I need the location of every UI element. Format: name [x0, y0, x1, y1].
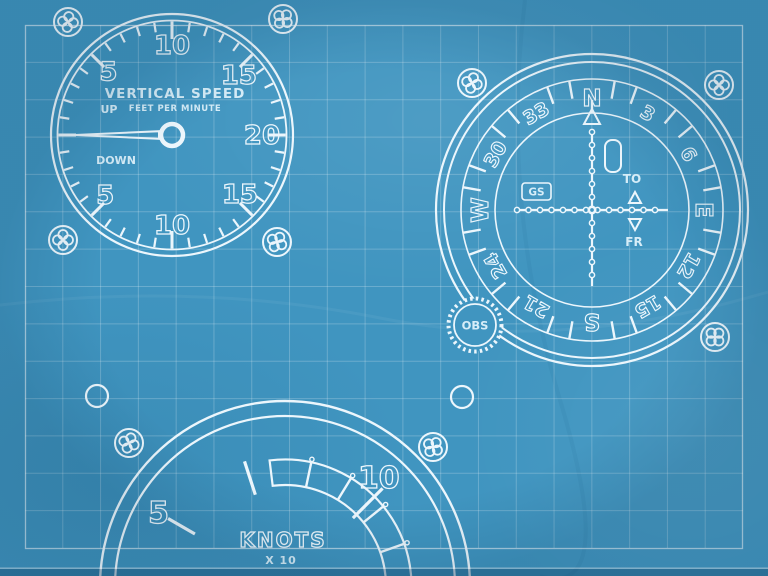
vsi-minor-tick — [60, 151, 69, 152]
blueprint-canvas: 510152015105 VERTICAL SPEED FEET PER MIN… — [0, 0, 768, 576]
vsi-minor-tick — [60, 117, 69, 118]
vsi-scale-number: 5 — [99, 57, 117, 87]
paper-edge-shadow — [0, 569, 768, 576]
blueprint-drawing: 510152015105 VERTICAL SPEED FEET PER MIN… — [0, 0, 768, 576]
obs-knob: OBS — [449, 299, 502, 352]
vor-needle-bead — [549, 207, 554, 212]
vor-compass-label: S — [584, 308, 601, 334]
screw-icon — [49, 226, 77, 254]
vor-needle-bead — [618, 207, 623, 212]
vsi-up-label: UP — [101, 103, 118, 116]
asi-title: KNOTS — [239, 528, 326, 552]
vor-needle-bead — [514, 207, 519, 212]
vsi-minor-tick — [275, 117, 284, 118]
vor-needle-bead — [572, 207, 577, 212]
screw-icon — [54, 8, 82, 36]
screw-icon — [705, 71, 733, 99]
vor-needle-bead — [589, 155, 594, 160]
screw-icon — [115, 429, 143, 457]
vor-compass-label: W — [468, 197, 494, 222]
obs-knob-label: OBS — [462, 319, 489, 333]
vor-needle-bead — [589, 233, 594, 238]
vsi-scale-number: 10 — [154, 211, 190, 241]
vor-needle-bead — [589, 220, 594, 225]
vor-needle-bead — [589, 194, 594, 199]
asi-scale-number: 5 — [148, 496, 169, 531]
vor-needle-bead — [629, 207, 634, 212]
vor-needle-bead — [526, 207, 531, 212]
vor-needle-bead — [589, 181, 594, 186]
vsi-down-label: DOWN — [96, 154, 136, 167]
vsi-title: VERTICAL SPEED — [105, 86, 246, 102]
vor-compass-label: E — [690, 202, 716, 218]
vor-needle-bead — [641, 207, 646, 212]
vsi-scale-number: 10 — [154, 31, 190, 61]
vsi-scale-number: 20 — [244, 121, 280, 151]
paper-edge-highlight — [0, 568, 768, 569]
vsi-scale-number: 15 — [222, 180, 258, 210]
vor-from-label: FR — [625, 235, 642, 249]
vor-gs-label: GS — [528, 187, 544, 199]
vor-needle-bead — [537, 207, 542, 212]
vsi-scale-number: 5 — [96, 181, 114, 211]
vor-needle-bead — [589, 142, 594, 147]
vor-needle-bead — [589, 129, 594, 134]
screw-icon — [458, 69, 486, 97]
vor-needle-bead — [560, 207, 565, 212]
vsi-minor-tick — [275, 151, 284, 152]
asi-scale-number: 10 — [358, 461, 400, 496]
vor-needle-bead — [589, 259, 594, 264]
vor-needle-bead — [589, 207, 594, 212]
vor-needle-bead — [652, 207, 657, 212]
vor-needle-bead — [589, 272, 594, 277]
vor-needle-bead — [589, 168, 594, 173]
vor-needle-bead — [589, 246, 594, 251]
vsi-subtitle: FEET PER MINUTE — [129, 104, 221, 114]
asi-subtitle: X 10 — [265, 554, 297, 567]
vor-needle-bead — [606, 207, 611, 212]
vor-to-label: TO — [623, 172, 641, 186]
